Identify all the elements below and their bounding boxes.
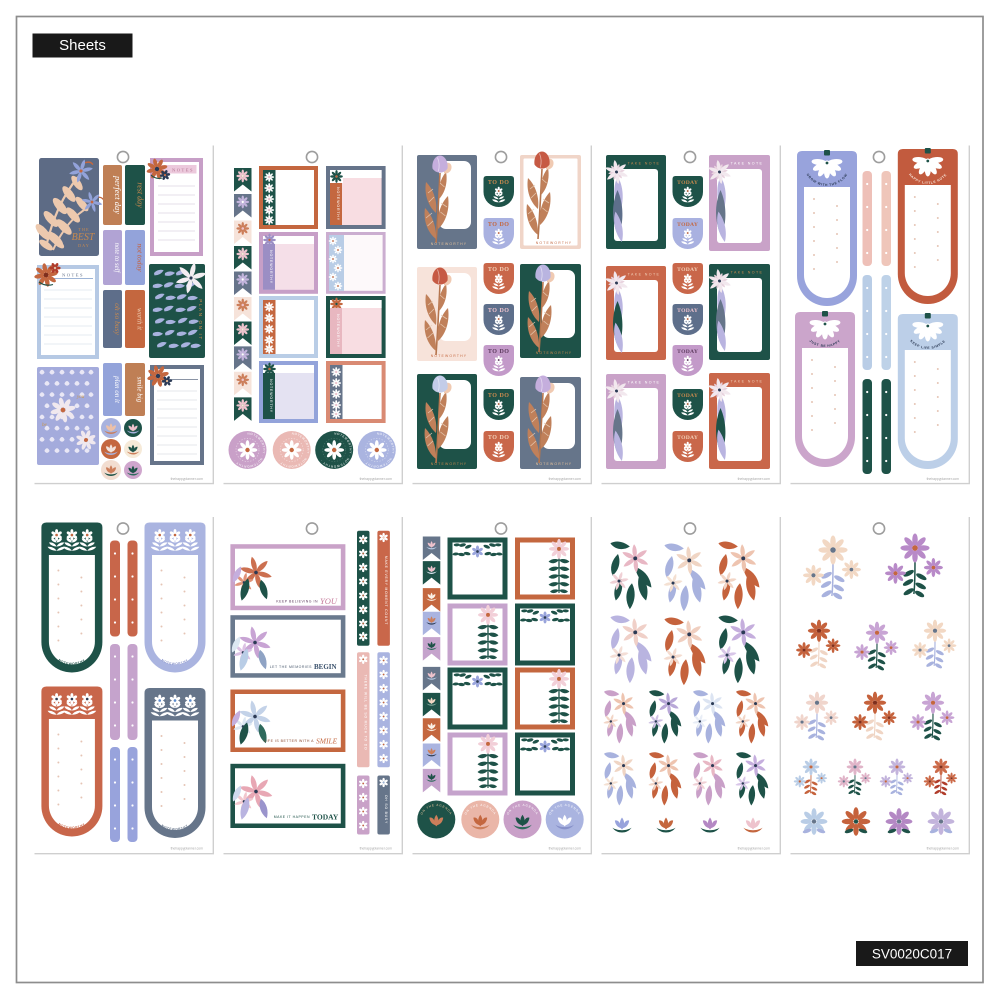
svg-text:TAKE NOTE: TAKE NOTE [628, 162, 661, 166]
svg-text:thehappyplanner.com: thehappyplanner.com [171, 847, 204, 851]
svg-text:BEST: BEST [72, 232, 96, 243]
svg-text:thehappyplanner.com: thehappyplanner.com [738, 847, 771, 851]
svg-text:thehappyplanner.com: thehappyplanner.com [549, 847, 582, 851]
svg-text:SV0020C017: SV0020C017 [872, 947, 952, 962]
svg-text:TO DO: TO DO [488, 393, 510, 399]
svg-text:thehappyplanner.com: thehappyplanner.com [549, 477, 582, 481]
svg-text:NOTES: NOTES [62, 273, 84, 278]
svg-text:MAKE IT HAPPEN: MAKE IT HAPPEN [274, 815, 310, 819]
svg-text:perfect day: perfect day [113, 175, 123, 214]
svg-text:TAKE NOTE: TAKE NOTE [731, 380, 764, 384]
svg-text:be: be [42, 423, 48, 428]
svg-text:rest day: rest day [136, 182, 145, 208]
svg-text:LIFE IS BETTER WITH A: LIFE IS BETTER WITH A [264, 739, 314, 743]
svg-text:thehappyplanner.com: thehappyplanner.com [927, 847, 960, 851]
svg-text:NOTEWORTHY: NOTEWORTHY [269, 379, 273, 413]
svg-text:TODAY: TODAY [677, 393, 698, 399]
svg-text:BEGIN: BEGIN [314, 663, 337, 671]
svg-text:NOTES: NOTES [172, 168, 194, 173]
svg-text:NOTEWORTHY: NOTEWORTHY [536, 241, 572, 245]
svg-text:TO DO: TO DO [488, 308, 510, 314]
svg-text:TAKE NOTE: TAKE NOTE [731, 271, 764, 275]
svg-text:thehappyplanner.com: thehappyplanner.com [171, 477, 204, 481]
svg-text:thehappyplanner.com: thehappyplanner.com [738, 477, 771, 481]
svg-text:NOTEWORTHY: NOTEWORTHY [536, 462, 572, 466]
svg-text:TODAY: TODAY [677, 308, 698, 314]
svg-text:TODAY: TODAY [677, 222, 698, 228]
svg-text:TAKE NOTE: TAKE NOTE [731, 162, 764, 166]
svg-text:Sheets: Sheets [59, 37, 106, 54]
svg-text:NOTEWORTHY: NOTEWORTHY [431, 242, 467, 246]
svg-text:NOTEWORTHY: NOTEWORTHY [336, 187, 340, 221]
svg-text:TO DO: TO DO [488, 180, 510, 186]
svg-text:worth it: worth it [136, 308, 144, 331]
svg-text:LET THE MEMORIES: LET THE MEMORIES [270, 665, 312, 669]
svg-text:NOTEWORTHY: NOTEWORTHY [431, 354, 467, 358]
svg-text:plan on it: plan on it [113, 375, 121, 404]
svg-text:TODAY: TODAY [677, 180, 698, 186]
svg-text:TODAY: TODAY [677, 435, 698, 441]
svg-text:NOTEWORTHY: NOTEWORTHY [536, 351, 572, 355]
svg-text:oh so busy: oh so busy [113, 303, 122, 335]
svg-text:PLAN ON IT: PLAN ON IT [198, 299, 203, 341]
svg-text:TO DO: TO DO [488, 267, 510, 273]
svg-text:THERE WILL BE SO MUCH TO DO: THERE WILL BE SO MUCH TO DO [364, 675, 368, 751]
svg-text:note to self: note to self [113, 243, 120, 274]
svg-text:TO DO: TO DO [488, 435, 510, 441]
svg-text:thehappyplanner.com: thehappyplanner.com [360, 847, 393, 851]
svg-text:TO DO: TO DO [488, 222, 510, 228]
svg-text:KEEP BELIEVING IN: KEEP BELIEVING IN [276, 600, 318, 604]
svg-text:NOTEWORTHY: NOTEWORTHY [336, 314, 340, 348]
svg-text:TO DO: TO DO [488, 349, 510, 355]
svg-text:TAKE NOTE: TAKE NOTE [628, 381, 661, 385]
svg-text:OH SO BUSY: OH SO BUSY [384, 795, 388, 824]
svg-text:thehappyplanner.com: thehappyplanner.com [927, 477, 960, 481]
svg-text:TODAY: TODAY [677, 349, 698, 355]
svg-text:NOTEWORTHY: NOTEWORTHY [431, 462, 467, 466]
svg-text:TODAY: TODAY [312, 813, 339, 822]
svg-text:YOU: YOU [320, 596, 338, 606]
svg-text:TAKE NOTE: TAKE NOTE [628, 273, 661, 277]
svg-text:smile big: smile big [136, 377, 144, 403]
svg-text:SMILE: SMILE [316, 737, 338, 746]
svg-text:you: you [76, 395, 85, 400]
svg-text:thehappyplanner.com: thehappyplanner.com [360, 477, 393, 481]
svg-text:TODAY: TODAY [677, 267, 698, 273]
svg-text:MAKE EVERY MOMENT COUNT: MAKE EVERY MOMENT COUNT [384, 556, 388, 625]
svg-text:not today: not today [136, 243, 145, 272]
svg-text:NOTEWORTHY: NOTEWORTHY [269, 250, 273, 284]
svg-text:DAY: DAY [78, 243, 90, 248]
